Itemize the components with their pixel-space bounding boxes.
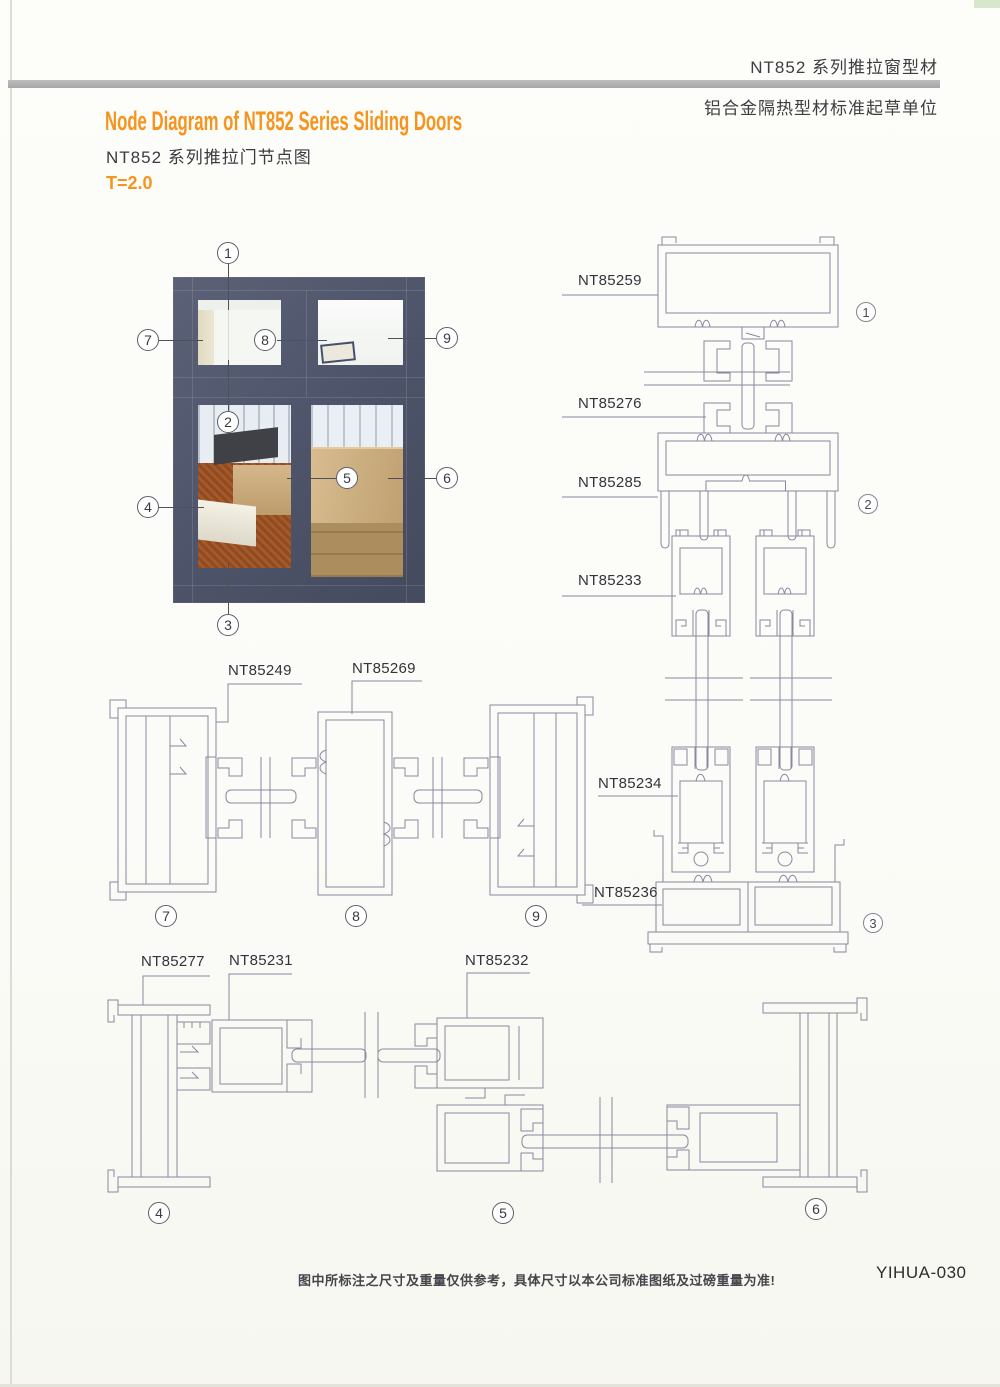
photo-callout-9: 9: [436, 327, 458, 349]
section-callout-3: 3: [863, 913, 883, 933]
section-callout-4: 4: [148, 1202, 170, 1224]
photo-callout-4: 4: [137, 496, 159, 518]
callout-leader-5: [287, 478, 336, 479]
callout-leader-8: [277, 340, 327, 341]
part-label-NT85269: NT85269: [352, 660, 416, 677]
part-label-NT85277: NT85277: [141, 953, 205, 970]
photo-callout-1: 1: [217, 242, 239, 264]
frame-joint-line: [173, 290, 425, 291]
section-callout-8: 8: [345, 905, 367, 927]
callout-leader-1: [228, 264, 229, 310]
header-organization: 铝合金隔热型材标准起草单位: [704, 94, 938, 119]
photo-callout-6: 6: [436, 467, 458, 489]
callout-leader-3: [228, 563, 229, 614]
footer-page-code: YIHUA-030: [876, 1263, 966, 1283]
callout-leader-2: [228, 360, 229, 411]
frame-joint-line: [173, 377, 425, 378]
photo-callout-5: 5: [336, 467, 358, 489]
glass-pane-top-right: [318, 300, 403, 365]
sliding-sash-bottom-profiles: [672, 747, 814, 872]
callout-leader-9: [388, 338, 436, 339]
section-6-sash-and-jamb-profile: [667, 998, 867, 1192]
frame-joint-line: [306, 290, 307, 397]
section-8-meeting-stile-profile: [292, 712, 482, 895]
photo-callout-7: 7: [137, 329, 159, 351]
part-label-NT85231: NT85231: [229, 952, 293, 969]
section-callout-7: 7: [155, 905, 177, 927]
page-background: NT852 系列推拉窗型材 铝合金隔热型材标准起草单位 Node Diagram…: [0, 0, 1000, 1387]
window-photo: [173, 277, 425, 603]
frame-joint-line: [406, 277, 407, 603]
thickness-spec: T=2.0: [106, 173, 153, 194]
footer-disclaimer: 图中所标注之尺寸及重量仅供参考，具体尺寸以本公司标准图纸及过磅重量为准!: [298, 1270, 775, 1289]
section-callout-9: 9: [525, 905, 547, 927]
profile-line-art: [0, 0, 1000, 1387]
ceiling: [198, 300, 281, 310]
part-label-NT85233: NT85233: [578, 572, 642, 589]
photo-callout-2: 2: [217, 411, 239, 433]
header-product-line: NT852 系列推拉窗型材: [750, 53, 938, 78]
section-5-meeting-stiles-profile: [415, 1018, 688, 1183]
part-label-NT85259: NT85259: [578, 272, 642, 289]
page-title-english: Node Diagram of NT852 Series Sliding Doo…: [105, 106, 462, 137]
part-label-NT85236: NT85236: [594, 884, 658, 901]
section-callout-2: 2: [858, 494, 878, 514]
sliding-sash-top-profiles: [665, 530, 832, 770]
coffee-table: [198, 499, 256, 546]
section-callout-5: 5: [492, 1202, 514, 1224]
section-9-right-jamb-profile: [464, 697, 593, 903]
door-frame-line: [228, 306, 229, 365]
section-7-left-jamb-profile: [110, 700, 296, 900]
glass-pane-bottom-left: [198, 405, 291, 568]
corner-scan-artifact: [974, 0, 1000, 8]
frame-joint-line: [173, 585, 425, 586]
section-1-top-frame-profile: [658, 237, 838, 339]
section-callout-6: 6: [805, 1198, 827, 1220]
frame-joint-line: [192, 277, 193, 603]
section-callout-1: 1: [856, 302, 876, 322]
page-left-edge: [10, 0, 12, 1387]
callout-leader-7: [159, 340, 203, 341]
part-label-NT85234: NT85234: [598, 775, 662, 792]
part-label-NT85285: NT85285: [578, 474, 642, 491]
callout-leader-4: [159, 507, 204, 508]
top-sash-channel-profile: [644, 341, 792, 433]
callout-leader-6: [388, 478, 436, 479]
part-label-NT85249: NT85249: [228, 662, 292, 679]
picture-frame: [320, 341, 356, 363]
daybed-right: [311, 447, 403, 523]
section-3-bottom-track-profile: [648, 830, 848, 952]
frame-joint-line: [173, 397, 425, 398]
page-title-chinese: NT852 系列推拉门节点图: [106, 143, 312, 168]
section-2-transom-profile: [658, 433, 838, 548]
part-label-NT85232: NT85232: [465, 952, 529, 969]
part-label-NT85276: NT85276: [578, 395, 642, 412]
photo-callout-8: 8: [254, 329, 276, 351]
section-4-jamb-and-sash-profile: [108, 1000, 440, 1192]
header-divider-bar: [8, 80, 940, 88]
glass-pane-bottom-right: [311, 405, 403, 577]
photo-callout-3: 3: [217, 614, 239, 636]
